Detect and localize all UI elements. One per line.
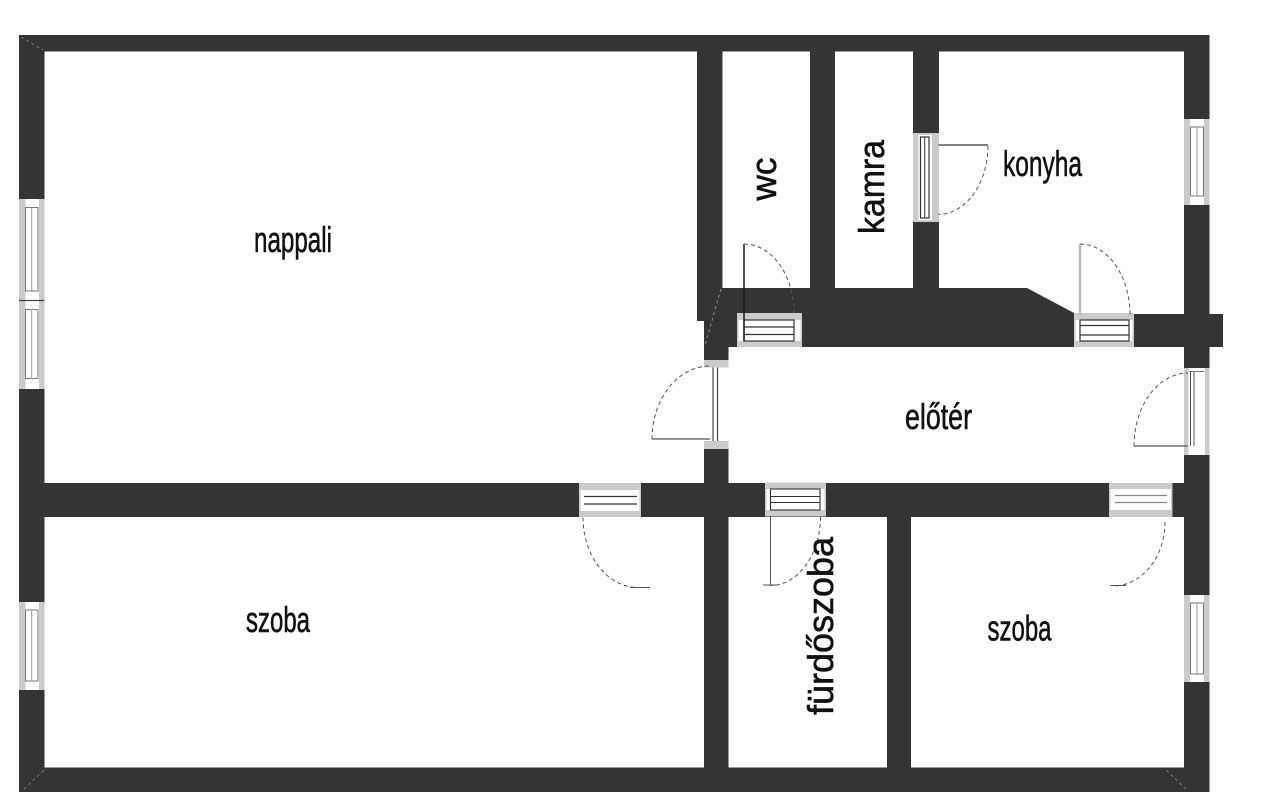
svg-text:szoba: szoba <box>246 599 311 640</box>
svg-text:nappali: nappali <box>254 219 332 260</box>
svg-text:fürdőszoba: fürdőszoba <box>800 536 841 715</box>
svg-text:szoba: szoba <box>988 608 1053 649</box>
svg-text:előtér: előtér <box>905 396 972 437</box>
svg-text:wc: wc <box>743 158 784 202</box>
svg-text:konyha: konyha <box>1003 143 1083 184</box>
svg-text:kamra: kamra <box>851 139 892 234</box>
